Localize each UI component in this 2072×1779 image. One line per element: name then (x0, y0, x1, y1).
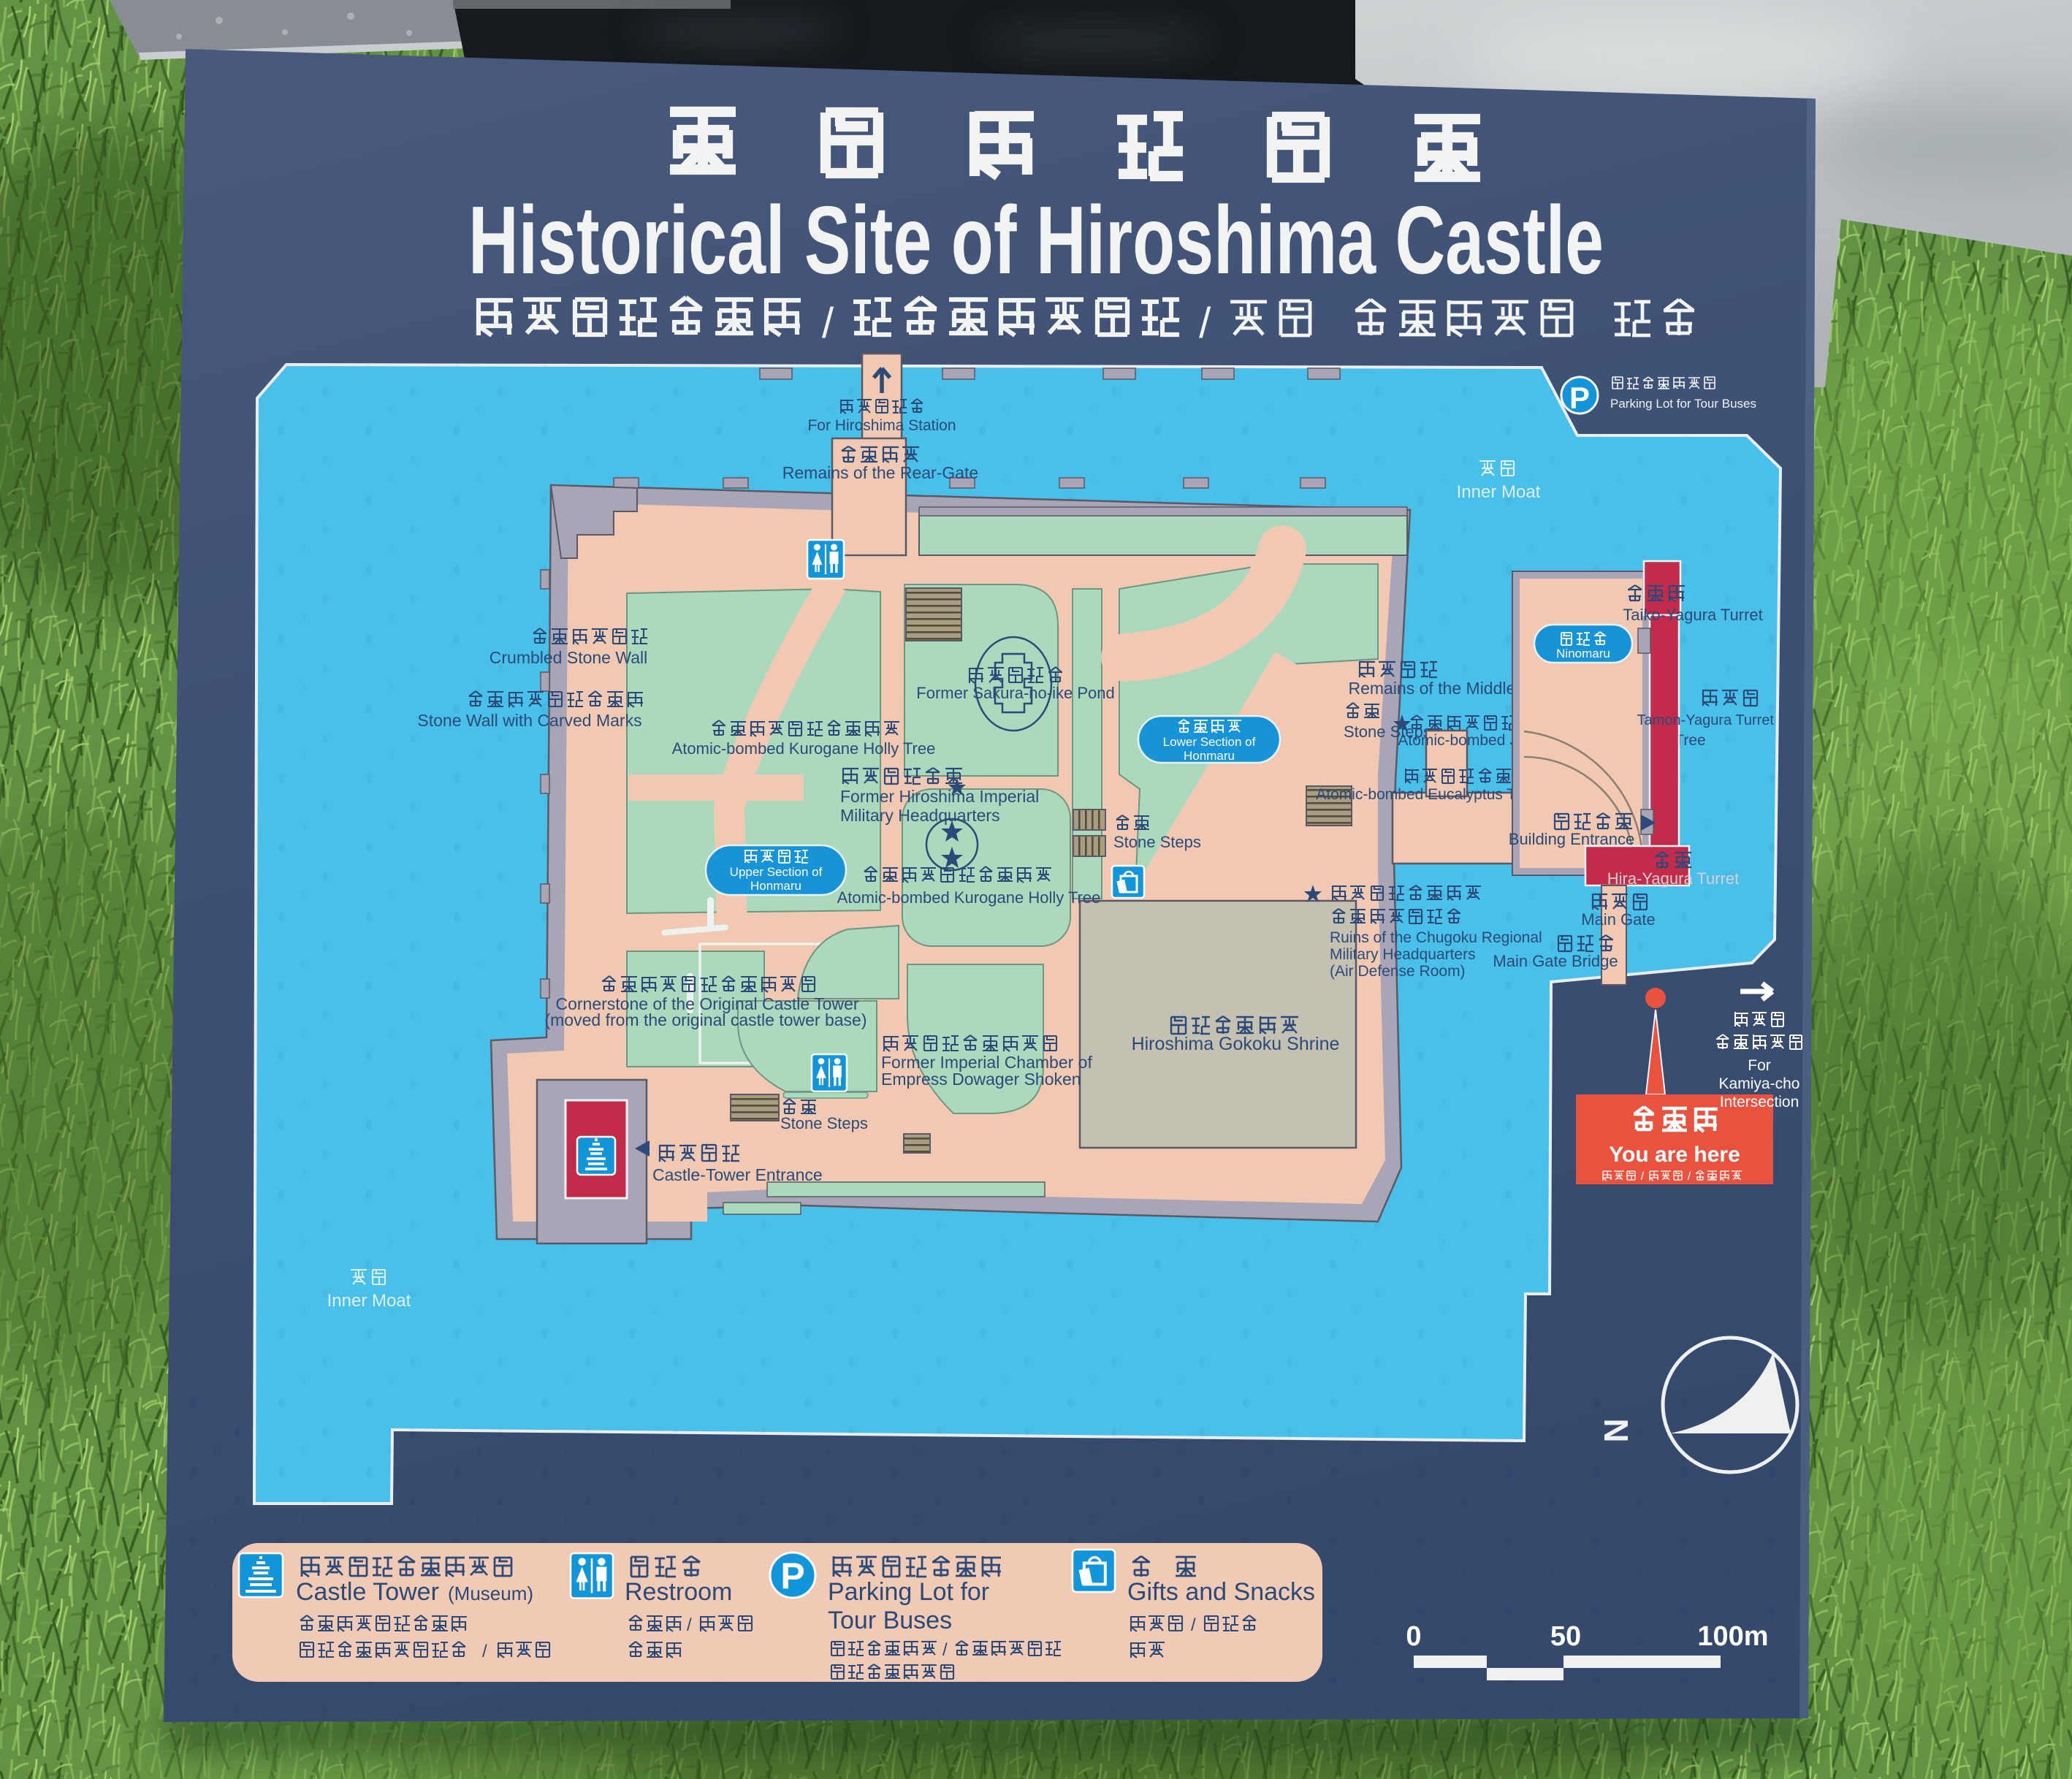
svg-text:Ninomaru: Ninomaru (1556, 647, 1610, 660)
svg-text:Stone Steps: Stone Steps (780, 1114, 868, 1132)
svg-text:/: / (1199, 300, 1211, 347)
svg-text:0: 0 (1406, 1621, 1421, 1652)
svg-text:Empress Dowager Shoken: Empress Dowager Shoken (881, 1070, 1081, 1089)
svg-text:Building Entrance: Building Entrance (1509, 830, 1634, 848)
svg-text:Atomic-bombed Eucalyptus Tree: Atomic-bombed Eucalyptus Tree (1316, 786, 1537, 803)
svg-text:100m: 100m (1697, 1621, 1768, 1652)
svg-text:Castle Tower: Castle Tower (296, 1578, 439, 1606)
svg-text:/: / (1688, 1170, 1691, 1183)
svg-text:Inner Moat: Inner Moat (327, 1291, 411, 1311)
svg-text:Military Headquarters: Military Headquarters (840, 806, 1000, 825)
svg-text:Atomic-bombed Kurogane Holly T: Atomic-bombed Kurogane Holly Tree (672, 739, 936, 758)
svg-text:Hiroshima Gokoku Shrine: Hiroshima Gokoku Shrine (1132, 1034, 1340, 1054)
svg-text:Atomic-bombed Kurogane Holly T: Atomic-bombed Kurogane Holly Tree (837, 888, 1101, 907)
svg-text:Castle-Tower Entrance: Castle-Tower Entrance (652, 1165, 823, 1184)
svg-text:P: P (1569, 381, 1590, 415)
svg-text:You are here: You are here (1609, 1143, 1740, 1167)
svg-text:Tour Buses: Tour Buses (828, 1607, 952, 1634)
svg-text:/: / (822, 300, 834, 347)
svg-text:Military Headquarters: Military Headquarters (1330, 946, 1476, 963)
svg-text:Former Hiroshima Imperial: Former Hiroshima Imperial (840, 787, 1039, 806)
svg-text:Gifts and Snacks: Gifts and Snacks (1127, 1578, 1315, 1606)
svg-text:For: For (1748, 1057, 1771, 1074)
svg-text:Parking Lot for Tour Buses: Parking Lot for Tour Buses (1610, 397, 1756, 411)
svg-text:N: N (1597, 1418, 1635, 1442)
svg-text:Remains of the Rear-Gate: Remains of the Rear-Gate (782, 463, 978, 482)
svg-text:Tamon-Yagura Turret: Tamon-Yagura Turret (1637, 712, 1775, 728)
svg-text:Upper Section of: Upper Section of (730, 865, 823, 879)
svg-text:Stone Wall with Carved Marks: Stone Wall with Carved Marks (417, 711, 641, 730)
svg-text:/: / (1191, 1615, 1196, 1635)
svg-text:Taiko-Yagura Turret: Taiko-Yagura Turret (1623, 606, 1763, 624)
svg-text:Former Sakura-no-ike Pond: Former Sakura-no-ike Pond (916, 684, 1114, 702)
svg-text:Honmaru: Honmaru (1184, 749, 1235, 763)
svg-text:Stone Steps: Stone Steps (1113, 833, 1201, 851)
svg-text:P: P (780, 1555, 804, 1596)
svg-text:Honmaru: Honmaru (750, 879, 801, 893)
svg-text:Main Gate: Main Gate (1581, 910, 1656, 929)
svg-text:Historical Site of Hiroshima C: Historical Site of Hiroshima Castle (468, 186, 1604, 294)
svg-text:Inner Moat: Inner Moat (1457, 482, 1541, 502)
svg-text:Main Gate Bridge: Main Gate Bridge (1493, 952, 1618, 970)
svg-text:/: / (482, 1642, 487, 1661)
svg-text:Kamiya-cho: Kamiya-cho (1719, 1075, 1800, 1092)
svg-text:Intersection: Intersection (1720, 1094, 1799, 1111)
svg-text:Crumbled Stone Wall: Crumbled Stone Wall (490, 648, 647, 667)
svg-text:/: / (687, 1615, 692, 1635)
svg-text:Ruins of the Chugoku Regional: Ruins of the Chugoku Regional (1330, 929, 1542, 946)
svg-text:50: 50 (1550, 1621, 1581, 1652)
svg-text:(Museum): (Museum) (448, 1582, 533, 1604)
svg-text:(Air Defense Room): (Air Defense Room) (1330, 963, 1466, 980)
svg-text:Lower Section of: Lower Section of (1163, 735, 1256, 749)
svg-text:Restroom: Restroom (625, 1578, 732, 1606)
svg-text:/: / (1641, 1170, 1645, 1183)
svg-text:(moved from the original castl: (moved from the original castle tower ba… (544, 1010, 866, 1029)
svg-text:/: / (942, 1640, 948, 1660)
svg-text:Parking Lot for: Parking Lot for (828, 1578, 989, 1606)
svg-text:For Hiroshima Station: For Hiroshima Station (807, 417, 956, 434)
